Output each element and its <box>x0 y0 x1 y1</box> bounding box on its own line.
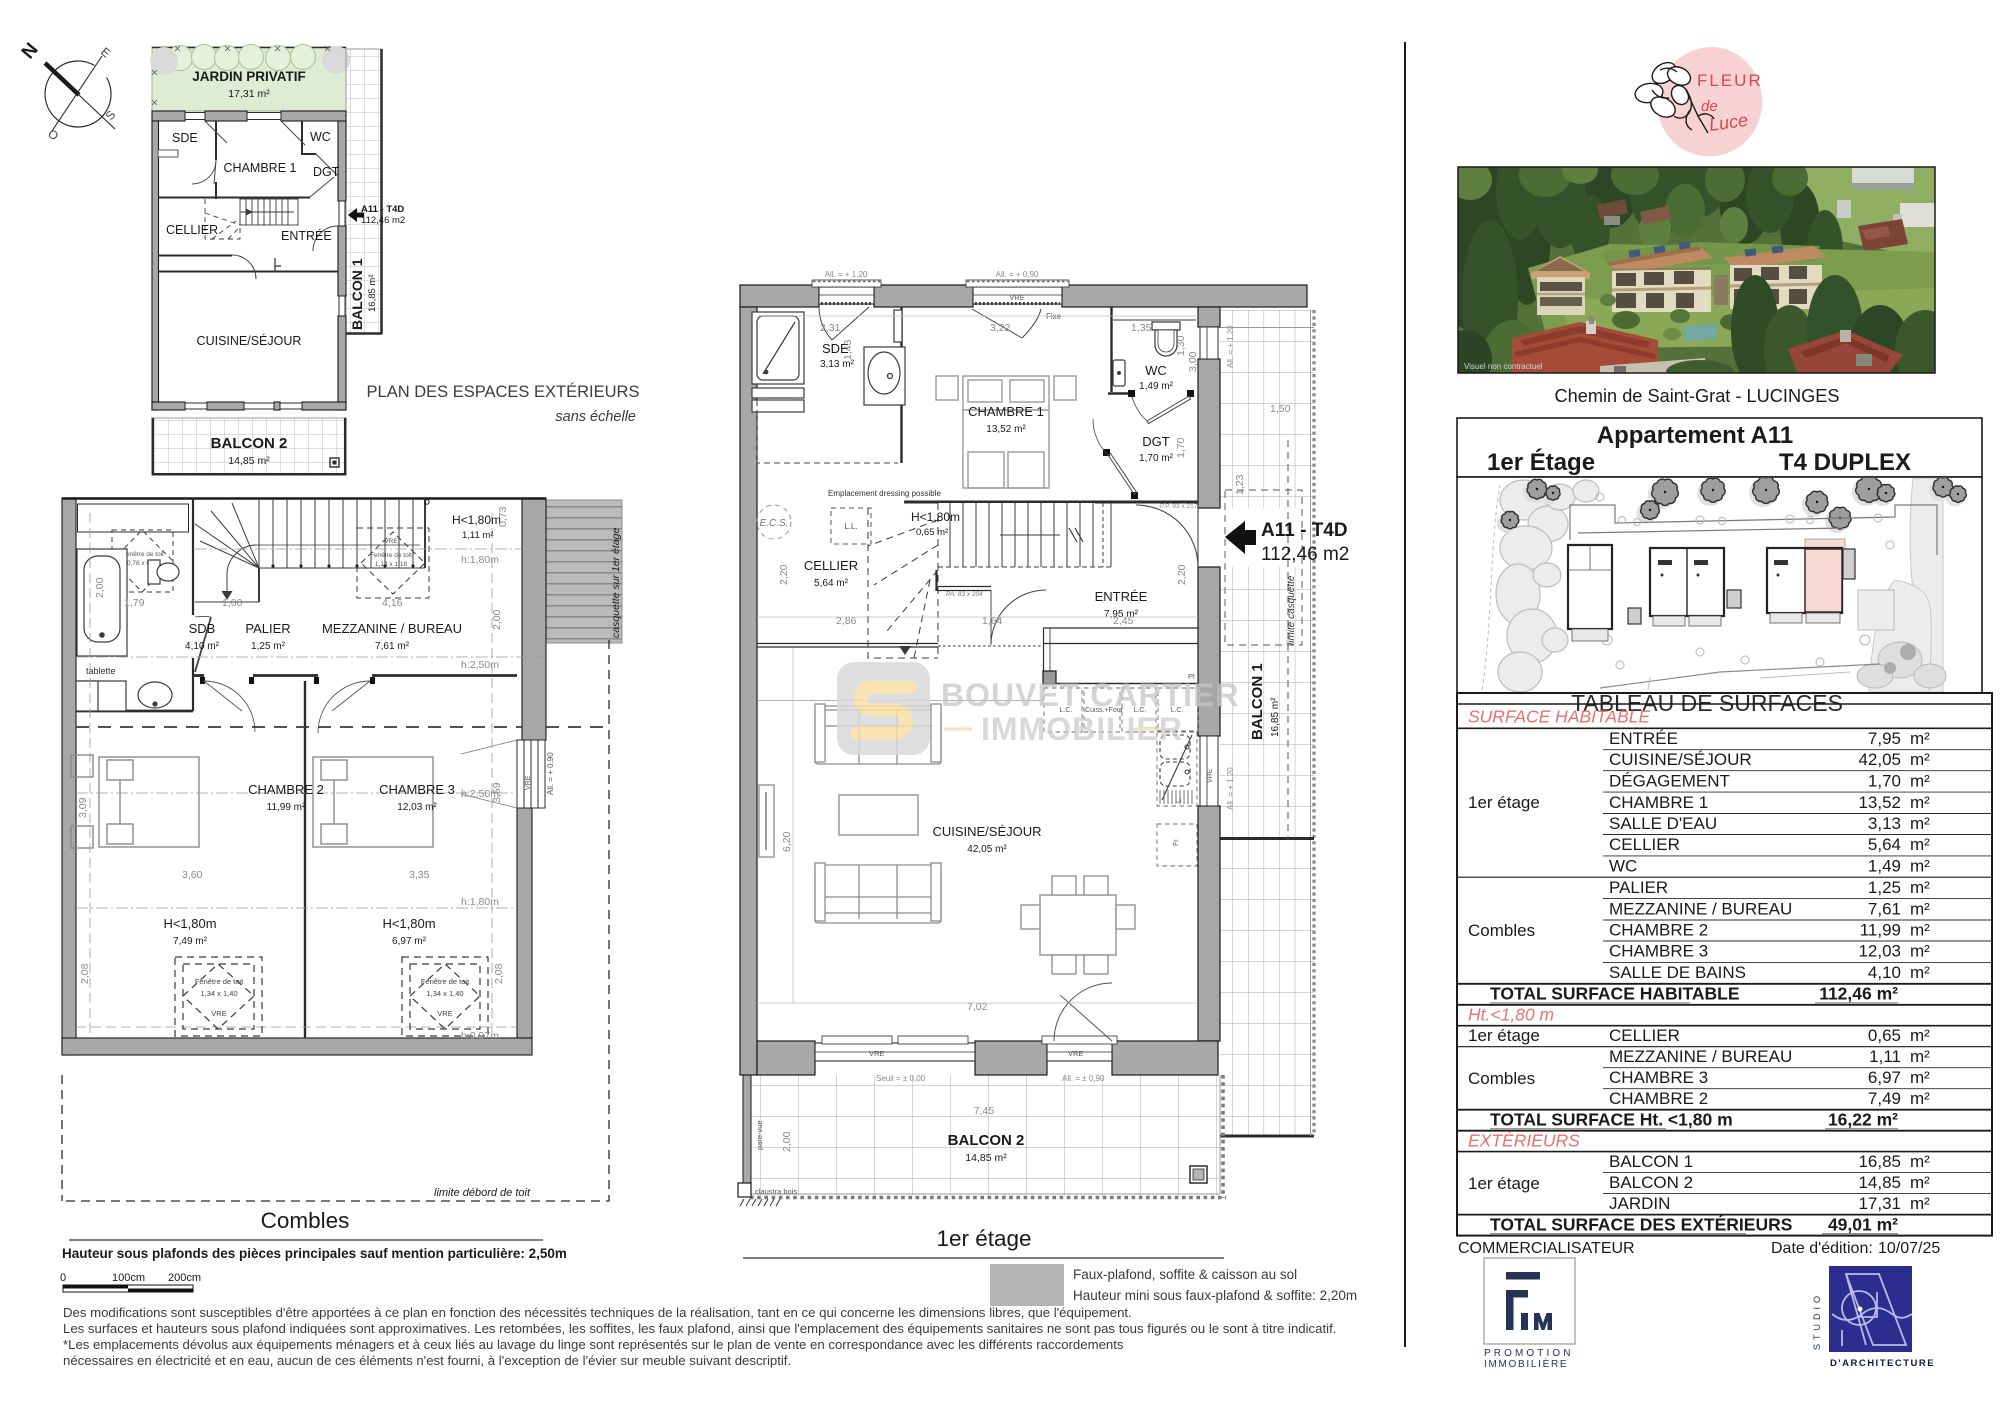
svg-text:m²: m² <box>1910 920 1930 939</box>
svg-text:12,03 m²: 12,03 m² <box>397 802 437 813</box>
svg-text:1,00: 1,00 <box>222 597 243 609</box>
svg-text:H<1,80m: H<1,80m <box>382 916 435 931</box>
svg-text:All. = + 1,20: All. = + 1,20 <box>1226 767 1235 810</box>
svg-text:All. = ± 0,90: All. = ± 0,90 <box>1062 1074 1105 1083</box>
svg-text:Combles: Combles <box>261 1208 350 1233</box>
svg-text:3,60: 3,60 <box>182 869 203 881</box>
svg-text:1er étage: 1er étage <box>1468 1026 1540 1045</box>
svg-text:Faux-plafond, soffite & caisso: Faux-plafond, soffite & caisson au sol <box>1073 1267 1297 1282</box>
svg-text:Fenêtre de toit: Fenêtre de toit <box>122 551 164 558</box>
svg-text:All. = + 0,90: All. = + 0,90 <box>996 270 1039 279</box>
svg-text:BALCON 2: BALCON 2 <box>948 1132 1025 1149</box>
svg-text:1er étage: 1er étage <box>1468 793 1540 812</box>
svg-text:casquette sur 1er étage: casquette sur 1er étage <box>610 528 622 638</box>
svg-text:VRE: VRE <box>211 1009 226 1018</box>
svg-text:16,22 m²: 16,22 m² <box>1828 1109 1898 1129</box>
svg-text:Hauteur mini sous faux-plafond: Hauteur mini sous faux-plafond & soffite… <box>1073 1288 1357 1303</box>
svg-text:1,11 m²: 1,11 m² <box>462 530 494 541</box>
svg-text:PROMOTION: PROMOTION <box>1484 1348 1574 1359</box>
svg-text:16,85 m²: 16,85 m² <box>1270 697 1281 737</box>
svg-text:E.C.S.: E.C.S. <box>760 518 789 529</box>
svg-text:17,31 m²: 17,31 m² <box>228 88 270 100</box>
svg-text:1,25 m²: 1,25 m² <box>251 641 286 652</box>
svg-text:1,35: 1,35 <box>1131 322 1152 334</box>
svg-text:A11 - T4D: A11 - T4D <box>1261 520 1348 541</box>
svg-text:2,31: 2,31 <box>820 322 841 334</box>
svg-text:2,00: 2,00 <box>781 1131 793 1152</box>
svg-text:1er étage: 1er étage <box>936 1226 1031 1251</box>
svg-text:3,22: 3,22 <box>990 322 1011 334</box>
svg-text:Visuel non contractuel: Visuel non contractuel <box>1464 362 1543 371</box>
svg-text:11,99: 11,99 <box>1860 920 1901 939</box>
svg-text:13,52: 13,52 <box>1858 793 1901 812</box>
svg-text:TOTAL SURFACE HABITABLE: TOTAL SURFACE HABITABLE <box>1490 984 1740 1004</box>
svg-text:H<1,80m: H<1,80m <box>163 916 216 931</box>
svg-text:VRE: VRE <box>384 538 398 545</box>
svg-text:Combles: Combles <box>1468 921 1535 940</box>
svg-text:42,05: 42,05 <box>1858 750 1901 769</box>
svg-text:17,31: 17,31 <box>1858 1194 1901 1213</box>
svg-text:6,20: 6,20 <box>781 831 793 852</box>
svg-text:CELLIER: CELLIER <box>1609 835 1680 854</box>
svg-text:MEZZANINE / BUREAU: MEZZANINE / BUREAU <box>322 621 462 636</box>
svg-text:m²: m² <box>1910 1089 1930 1108</box>
svg-text:nécessaires en électricité et: nécessaires en électricité et en eau, au… <box>63 1353 791 1368</box>
svg-text:1er étage: 1er étage <box>1468 1174 1540 1193</box>
svg-text:CHAMBRE 3: CHAMBRE 3 <box>1609 1068 1708 1087</box>
svg-text:T4 DUPLEX: T4 DUPLEX <box>1779 449 1911 476</box>
svg-text:L.: L. <box>1176 797 1183 803</box>
svg-text:m²: m² <box>1910 1194 1930 1213</box>
svg-text:5,64 m²: 5,64 m² <box>814 578 849 589</box>
svg-text:42,05 m²: 42,05 m² <box>967 844 1007 855</box>
svg-text:2,00: 2,00 <box>94 577 106 598</box>
svg-text:tablette: tablette <box>86 666 116 676</box>
svg-text:1,79: 1,79 <box>124 597 145 609</box>
svg-text:H<1,80m: H<1,80m <box>452 513 501 527</box>
svg-text:ENTRÉE: ENTRÉE <box>1095 589 1148 604</box>
svg-text:1,14 x 1,18: 1,14 x 1,18 <box>375 561 408 568</box>
svg-text:SDE: SDE <box>172 131 198 145</box>
svg-text:m²: m² <box>1910 771 1930 790</box>
svg-text:3,09: 3,09 <box>77 797 89 818</box>
svg-text:7,49 m²: 7,49 m² <box>173 936 208 947</box>
svg-text:CHAMBRE 1: CHAMBRE 1 <box>224 161 297 175</box>
svg-text:JARDIN: JARDIN <box>1609 1194 1670 1213</box>
svg-text:h:2,50m: h:2,50m <box>461 659 499 671</box>
svg-text:m²: m² <box>1910 899 1930 918</box>
svg-text:m²: m² <box>1910 1026 1930 1045</box>
svg-text:BALCON 2: BALCON 2 <box>211 435 288 452</box>
svg-text:VRE: VRE <box>869 1049 884 1058</box>
svg-text:CHAMBRE 2: CHAMBRE 2 <box>1609 920 1708 939</box>
svg-text:h:1,80m: h:1,80m <box>461 554 499 566</box>
svg-text:CHAMBRE 1: CHAMBRE 1 <box>968 404 1044 419</box>
svg-text:VRE: VRE <box>1207 768 1214 783</box>
svg-text:1,50: 1,50 <box>1270 403 1291 415</box>
svg-text:4,10 m²: 4,10 m² <box>185 641 220 652</box>
svg-text:CUISINE/SÉJOUR: CUISINE/SÉJOUR <box>1609 750 1752 769</box>
svg-text:4,16: 4,16 <box>382 597 403 609</box>
svg-text:H<1,80m: H<1,80m <box>911 510 960 524</box>
svg-text:m²: m² <box>1910 835 1930 854</box>
svg-text:m²: m² <box>1910 750 1930 769</box>
svg-text:112,46 m2: 112,46 m2 <box>1261 544 1349 565</box>
svg-text:100cm: 100cm <box>112 1272 145 1284</box>
svg-text:7,95: 7,95 <box>1868 729 1901 748</box>
svg-text:2,08: 2,08 <box>79 963 91 984</box>
svg-text:SURFACE HABITABLE: SURFACE HABITABLE <box>1468 707 1650 727</box>
svg-text:m²: m² <box>1910 963 1930 982</box>
svg-text:1,49 m²: 1,49 m² <box>1139 381 1174 392</box>
svg-text:3,00: 3,00 <box>1187 351 1199 372</box>
svg-text:3,35: 3,35 <box>409 869 430 881</box>
svg-text:DÉGAGEMENT: DÉGAGEMENT <box>1609 771 1730 790</box>
svg-text:m²: m² <box>1910 878 1930 897</box>
svg-text:L.L.: L.L. <box>844 522 857 531</box>
svg-text:m²: m² <box>1910 1173 1930 1192</box>
svg-text:1,70: 1,70 <box>1868 771 1901 790</box>
svg-text:PA: 83 x 204: PA: 83 x 204 <box>946 591 983 598</box>
svg-text:Date d'édition:: Date d'édition: <box>1771 1240 1873 1257</box>
svg-text:112,46 m²: 112,46 m² <box>1819 984 1898 1004</box>
svg-text:pare-vue: pare-vue <box>755 1120 764 1150</box>
svg-text:Fr.: Fr. <box>1173 838 1180 846</box>
svg-text:2,20: 2,20 <box>778 564 790 585</box>
svg-text:5,64: 5,64 <box>1868 835 1901 854</box>
svg-text:1,49: 1,49 <box>1868 857 1901 876</box>
svg-text:h:1,80m: h:1,80m <box>461 896 499 908</box>
svg-text:VRE: VRE <box>525 775 532 790</box>
svg-text:1,23: 1,23 <box>1234 474 1246 495</box>
svg-text:m²: m² <box>1910 1068 1930 1087</box>
svg-text:CELLIER: CELLIER <box>1609 1026 1680 1045</box>
svg-text:WC: WC <box>1145 363 1167 378</box>
svg-text:m²: m² <box>1910 1047 1930 1066</box>
svg-text:Combles: Combles <box>1468 1069 1535 1088</box>
svg-text:1,34 x 1,40: 1,34 x 1,40 <box>426 989 463 998</box>
svg-text:WC: WC <box>1609 857 1637 876</box>
svg-text:Emplacement dressing possible: Emplacement dressing possible <box>828 489 941 498</box>
svg-text:FLEUR: FLEUR <box>1697 71 1763 90</box>
svg-text:14,85 m²: 14,85 m² <box>965 1152 1007 1164</box>
svg-text:m²: m² <box>1910 942 1930 961</box>
svg-text:*Les emplacements dévolus aux: *Les emplacements dévolus aux équipement… <box>63 1337 1124 1352</box>
svg-text:14,85: 14,85 <box>1858 1173 1901 1192</box>
svg-text:COMMERCIALISATEUR: COMMERCIALISATEUR <box>1458 1240 1635 1257</box>
svg-text:16,85: 16,85 <box>1858 1152 1901 1171</box>
svg-text:SDB: SDB <box>189 621 216 636</box>
svg-text:1,70: 1,70 <box>1175 437 1187 458</box>
svg-text:Chemin de Saint-Grat - LUCINGE: Chemin de Saint-Grat - LUCINGES <box>1554 386 1839 406</box>
svg-text:BOUVET CARTIER: BOUVET CARTIER <box>941 677 1239 713</box>
svg-text:Appartement A11: Appartement A11 <box>1597 422 1794 449</box>
svg-text:CELLIER: CELLIER <box>166 223 218 237</box>
svg-text:Des modifications sont suscept: Des modifications sont susceptibles d'êt… <box>63 1305 1132 1320</box>
svg-text:6,97 m²: 6,97 m² <box>392 936 427 947</box>
svg-text:200cm: 200cm <box>168 1272 201 1284</box>
svg-text:1,30: 1,30 <box>1175 335 1187 356</box>
svg-text:TOTAL SURFACE DES EXTÉRIEURS: TOTAL SURFACE DES EXTÉRIEURS <box>1490 1213 1792 1234</box>
svg-text:BALCON 1: BALCON 1 <box>349 258 365 330</box>
svg-text:m²: m² <box>1910 729 1930 748</box>
svg-text:sans échelle: sans échelle <box>555 409 636 425</box>
svg-text:7,61: 7,61 <box>1868 899 1901 918</box>
svg-text:Fenêtre de toit: Fenêtre de toit <box>421 977 470 986</box>
svg-text:7,61 m²: 7,61 m² <box>375 641 410 652</box>
svg-text:All. = + 0,90: All. = + 0,90 <box>546 752 555 795</box>
svg-text:All. = + 1,20: All. = + 1,20 <box>1226 325 1235 368</box>
svg-text:CHAMBRE 3: CHAMBRE 3 <box>1609 942 1708 961</box>
svg-text:CUISINE/SÉJOUR: CUISINE/SÉJOUR <box>932 824 1041 839</box>
svg-text:Seuil = ± 0,00: Seuil = ± 0,00 <box>876 1074 926 1083</box>
svg-text:CHAMBRE 2: CHAMBRE 2 <box>1609 1089 1708 1108</box>
svg-text:10/07/25: 10/07/25 <box>1878 1240 1940 1257</box>
svg-text:TOTAL SURFACE Ht. <1,80 m: TOTAL SURFACE Ht. <1,80 m <box>1490 1109 1733 1129</box>
svg-text:VRE: VRE <box>437 1009 452 1018</box>
svg-text:14,85 m²: 14,85 m² <box>228 455 270 467</box>
svg-text:ENTRÉE: ENTRÉE <box>1609 729 1678 748</box>
svg-text:VRE: VRE <box>1068 1049 1083 1058</box>
svg-text:11,99 m²: 11,99 m² <box>267 802 306 813</box>
svg-text:claustra bois: claustra bois <box>755 1187 797 1196</box>
svg-text:Ht.<1,80 m: Ht.<1,80 m <box>1468 1005 1554 1025</box>
svg-text:P.P. 93 x 217: P.P. 93 x 217 <box>1160 503 1198 510</box>
svg-text:4,10: 4,10 <box>1868 963 1901 982</box>
svg-text:1,70 m²: 1,70 m² <box>1139 453 1174 464</box>
svg-text:SALLE DE BAINS: SALLE DE BAINS <box>1609 963 1746 982</box>
svg-text:VRE: VRE <box>1009 293 1024 302</box>
svg-text:PALIER: PALIER <box>1609 878 1668 897</box>
svg-text:CELLIER: CELLIER <box>804 558 858 573</box>
svg-text:PLAN DES ESPACES EXTÉRIEURS: PLAN DES ESPACES EXTÉRIEURS <box>367 382 640 401</box>
svg-text:2,20: 2,20 <box>1176 564 1188 585</box>
svg-text:7,45: 7,45 <box>974 1105 995 1117</box>
svg-text:CHAMBRE 2: CHAMBRE 2 <box>248 782 324 797</box>
svg-text:D'ARCHITECTURE: D'ARCHITECTURE <box>1830 1358 1935 1369</box>
svg-text:6,97: 6,97 <box>1868 1068 1901 1087</box>
svg-text:7,49: 7,49 <box>1868 1089 1901 1108</box>
svg-text:m²: m² <box>1910 814 1930 833</box>
svg-text:h:0,97m: h:0,97m <box>461 1030 499 1042</box>
svg-text:0,73: 0,73 <box>497 506 509 527</box>
svg-text:49,01 m²: 49,01 m² <box>1828 1214 1898 1234</box>
svg-text:DGT: DGT <box>313 165 340 179</box>
svg-text:A11 - T4D: A11 - T4D <box>361 204 404 215</box>
svg-text:MEZZANINE / BUREAU: MEZZANINE / BUREAU <box>1609 1047 1792 1066</box>
svg-text:3,59: 3,59 <box>491 782 503 803</box>
svg-text:MEZZANINE / BUREAU: MEZZANINE / BUREAU <box>1609 899 1792 918</box>
svg-text:PALIER: PALIER <box>245 621 290 636</box>
svg-text:Fenêtre de toit: Fenêtre de toit <box>195 977 244 986</box>
svg-text:EXTÉRIEURS: EXTÉRIEURS <box>1468 1131 1580 1151</box>
svg-text:ENTRÉE: ENTRÉE <box>281 228 332 243</box>
svg-text:0,65 m²: 0,65 m² <box>916 527 948 538</box>
svg-text:1,25: 1,25 <box>1868 878 1901 897</box>
svg-text:DGT: DGT <box>1142 434 1170 449</box>
svg-text:STUDIO: STUDIO <box>1812 1292 1822 1350</box>
svg-text:2,00: 2,00 <box>491 609 503 630</box>
svg-text:JARDIN PRIVATIF: JARDIN PRIVATIF <box>192 69 306 84</box>
svg-text:1,34 x 1,40: 1,34 x 1,40 <box>200 989 237 998</box>
svg-text:BALCON 1: BALCON 1 <box>1609 1152 1693 1171</box>
svg-text:1er Étage: 1er Étage <box>1487 448 1595 476</box>
svg-text:12,03: 12,03 <box>1858 942 1901 961</box>
svg-text:Fixe: Fixe <box>1046 312 1062 321</box>
svg-text:13,52 m²: 13,52 m² <box>986 424 1026 435</box>
svg-text:CHAMBRE 1: CHAMBRE 1 <box>1609 793 1708 812</box>
svg-text:m²: m² <box>1910 793 1930 812</box>
svg-text:de: de <box>1701 98 1718 115</box>
svg-text:112,46 m2: 112,46 m2 <box>361 215 405 226</box>
svg-text:CHAMBRE 3: CHAMBRE 3 <box>379 782 455 797</box>
svg-text:Les surfaces et hauteurs sous: Les surfaces et hauteurs sous plafond in… <box>63 1321 1336 1336</box>
svg-text:2,08: 2,08 <box>493 963 505 984</box>
svg-text:SALLE D'EAU: SALLE D'EAU <box>1609 814 1717 833</box>
svg-text:CUISINE/SÉJOUR: CUISINE/SÉJOUR <box>197 333 302 348</box>
svg-text:16,85 m²: 16,85 m² <box>367 275 378 313</box>
svg-text:3,13: 3,13 <box>1868 814 1901 833</box>
svg-text:Fenêtre de toit: Fenêtre de toit <box>370 552 412 559</box>
svg-text:IMMOBILIÈRE: IMMOBILIÈRE <box>1484 1357 1568 1370</box>
svg-text:m²: m² <box>1910 857 1930 876</box>
svg-text:0,65: 0,65 <box>1868 1026 1901 1045</box>
svg-text:BALCON 1: BALCON 1 <box>1249 663 1266 740</box>
svg-text:0: 0 <box>60 1272 66 1284</box>
svg-text:limite débord de toit: limite débord de toit <box>434 1187 531 1199</box>
svg-text:WC: WC <box>310 130 331 144</box>
svg-text:1,43: 1,43 <box>842 339 854 360</box>
svg-text:m²: m² <box>1910 1152 1930 1171</box>
svg-text:BALCON 2: BALCON 2 <box>1609 1173 1693 1192</box>
svg-text:All. = + 1,20: All. = + 1,20 <box>825 270 868 279</box>
svg-text:Hauteur sous plafonds des pièc: Hauteur sous plafonds des pièces princip… <box>62 1246 567 1261</box>
svg-text:1,11: 1,11 <box>1869 1047 1901 1066</box>
